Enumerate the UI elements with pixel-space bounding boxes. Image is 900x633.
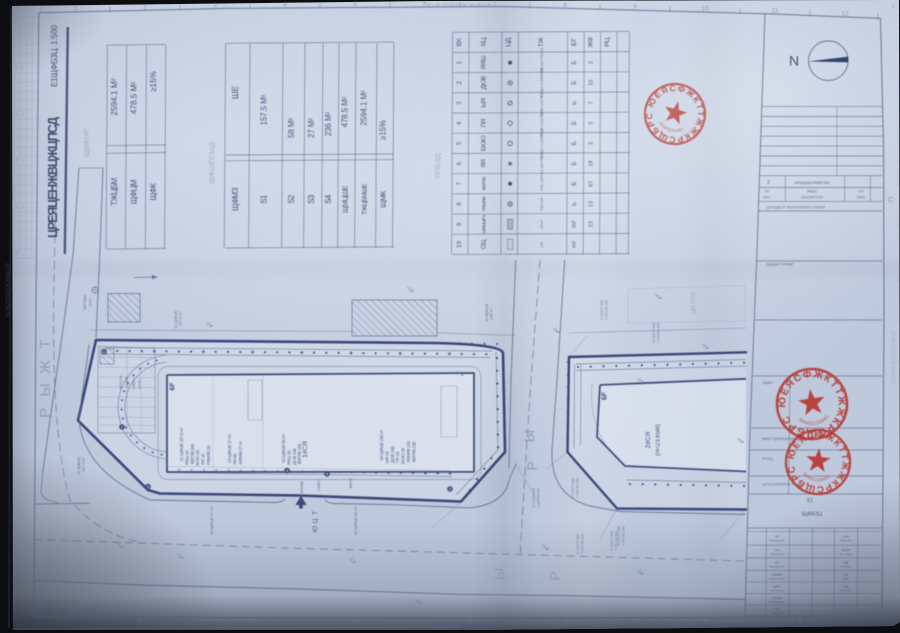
svg-text:Y=50046.393: Y=50046.393 bbox=[657, 323, 661, 343]
svg-text:m²: m² bbox=[572, 221, 578, 228]
svg-text:6F: 6F bbox=[170, 382, 177, 391]
svg-text:Б: Б bbox=[572, 81, 578, 85]
svg-text:РСХЦ: РСХЦ bbox=[762, 456, 773, 461]
svg-text:КББТ: КББТ bbox=[763, 380, 773, 385]
svg-text:ТЖЦБМШЕ: ТЖЦБМШЕ bbox=[362, 184, 369, 215]
svg-text:3: 3 bbox=[588, 122, 594, 125]
svg-text:1:500: 1:500 bbox=[50, 24, 59, 45]
svg-text:2#СЯ: 2#СЯ bbox=[645, 431, 652, 448]
svg-text:3: 3 bbox=[213, 2, 217, 9]
svg-text:Y=50046.393: Y=50046.393 bbox=[605, 300, 609, 320]
svg-text:ЩФШЕСЫД:: ЩФШЕСЫД: bbox=[207, 140, 216, 184]
svg-text:1: 1 bbox=[121, 425, 123, 429]
svg-text:1#СЯ: 1#СЯ bbox=[302, 441, 309, 458]
svg-text:БФЕП: БФЕП bbox=[132, 379, 136, 389]
svg-text:Drawed By: Drawed By bbox=[771, 552, 784, 556]
svg-text:--: -- bbox=[27, 169, 31, 171]
svg-text:2: 2 bbox=[892, 4, 895, 10]
svg-text:X=15577.846: X=15577.846 bbox=[571, 478, 575, 498]
svg-text:13: 13 bbox=[588, 201, 594, 207]
svg-text:3: 3 bbox=[588, 142, 594, 145]
svg-text:S1: S1 bbox=[260, 194, 269, 204]
svg-text:ЩБДФЗ: ЩБДФЗ bbox=[771, 573, 782, 577]
svg-text:Chief Design: Chief Design bbox=[770, 588, 785, 592]
svg-text:НФ: НФ bbox=[540, 241, 544, 247]
svg-text:5: 5 bbox=[456, 141, 463, 145]
svg-text:67: 67 bbox=[588, 181, 594, 187]
svg-text:Reviewed By: Reviewed By bbox=[769, 565, 785, 569]
svg-text:ЯЯШ 1Б: ЯЯШ 1Б bbox=[286, 450, 291, 465]
svg-text:157.5 m²: 157.5 m² bbox=[179, 310, 183, 326]
svg-text:Б: Б bbox=[572, 202, 578, 206]
svg-text:7: 7 bbox=[588, 101, 594, 104]
svg-text:P80-100: P80-100 bbox=[540, 197, 544, 211]
svg-text:S4 ЩФШЕ 236 m²: S4 ЩФШЕ 236 m² bbox=[379, 429, 384, 461]
svg-text:Ю AUTODESK КЫЕСЯ: Ю AUTODESK КЫЕСЯ bbox=[427, 4, 491, 10]
svg-text:11: 11 bbox=[772, 8, 779, 15]
svg-text:СФ: СФ bbox=[858, 190, 863, 194]
svg-text:S3: S3 bbox=[307, 194, 316, 204]
svg-text:3: 3 bbox=[456, 101, 463, 105]
svg-text:ЯПБЗД:: ЯПБЗД: bbox=[433, 151, 442, 178]
svg-text:5: 5 bbox=[353, 1, 357, 8]
svg-text:1#: 1# bbox=[21, 112, 25, 116]
svg-text:N: N bbox=[789, 53, 799, 69]
svg-text:РВМЯВ 2Б: РВМЯВ 2Б bbox=[206, 445, 211, 465]
svg-text:8: 8 bbox=[456, 202, 463, 206]
svg-text:--: -- bbox=[27, 29, 31, 31]
svg-text:ЩЖ: ЩЖ bbox=[15, 250, 19, 256]
svg-text:REV.: REV. bbox=[763, 196, 770, 200]
svg-text:Discip.Leader: Discip.Leader bbox=[769, 577, 785, 581]
svg-text:157.5 m²: 157.5 m² bbox=[82, 456, 86, 472]
svg-text:ТЖЦБМ: ТЖЦБМ bbox=[110, 177, 119, 206]
svg-text:≥15%: ≥15% bbox=[378, 120, 387, 140]
svg-text:3: 3 bbox=[449, 487, 451, 491]
svg-text:Р: Р bbox=[547, 571, 563, 580]
svg-text:ЦХ: ЦХ bbox=[844, 584, 848, 588]
svg-text:5: 5 bbox=[326, 472, 328, 476]
svg-text:6F: 6F bbox=[602, 391, 609, 400]
svg-text:10: 10 bbox=[588, 80, 594, 86]
svg-text:ФВТЯВ 19Б: ФВТЯВ 19Б bbox=[297, 443, 302, 464]
svg-text:--: -- bbox=[27, 57, 31, 59]
svg-text:m²: m² bbox=[572, 241, 578, 248]
svg-text:ХЦ: ХЦ bbox=[480, 38, 487, 47]
svg-text:2594.1 M²: 2594.1 M² bbox=[110, 78, 119, 115]
svg-text:2: 2 bbox=[767, 180, 770, 186]
svg-text:ЯЯЫС: ЯЯЫС bbox=[807, 190, 818, 194]
svg-text:ДЦЩБР STAMP: ДЦЩБР STAMP bbox=[766, 263, 794, 267]
svg-text:(H=23.65M): (H=23.65M) bbox=[656, 424, 662, 456]
svg-text:ЩЖ: ЩЖ bbox=[15, 17, 19, 23]
svg-text:БТ: БТ bbox=[571, 38, 578, 46]
svg-text:ЦКБС: ЦКБС bbox=[773, 584, 782, 588]
svg-text:12: 12 bbox=[841, 10, 849, 17]
svg-text:РВМЯВ: РВМЯВ bbox=[481, 196, 486, 211]
svg-text:Б: Б bbox=[572, 182, 578, 186]
svg-text:S1 ЩФШЕ: S1 ЩФШЕ bbox=[174, 310, 178, 329]
svg-text:2: 2 bbox=[588, 61, 594, 64]
svg-text:X=15577.846: X=15577.846 bbox=[652, 323, 656, 343]
svg-text:ЫЯ 1Б: ЫЯ 1Б bbox=[384, 451, 389, 463]
svg-text:S1 ЩФШЕ: S1 ЩФШЕ bbox=[77, 456, 81, 475]
svg-text:Ц: Ц bbox=[312, 518, 319, 523]
svg-text:РВМЯВ 11Б: РВМЯВ 11Б bbox=[406, 441, 411, 463]
svg-text:ФВТЯВ 23Б: ФВТЯВ 23Б bbox=[411, 441, 416, 462]
svg-text:ВХ: ВХ bbox=[456, 38, 463, 47]
svg-text:РЦ: РЦ bbox=[604, 38, 611, 47]
svg-text:ЯЯШ 1Б: ЯЯШ 1Б bbox=[184, 450, 189, 465]
svg-text:S4 ЩФШЕ: S4 ЩФШЕ bbox=[485, 303, 489, 322]
svg-text:Б: Б bbox=[572, 61, 578, 65]
svg-text:4: 4 bbox=[286, 469, 288, 473]
svg-text:23: 23 bbox=[588, 221, 594, 227]
svg-text:X=15577.846: X=15577.846 bbox=[600, 300, 604, 320]
svg-text:2: 2 bbox=[147, 485, 149, 489]
svg-text:Y=50046.393: Y=50046.393 bbox=[622, 526, 626, 546]
svg-text:Y=50046.393: Y=50046.393 bbox=[537, 488, 541, 508]
svg-text:1#: 1# bbox=[21, 159, 25, 163]
svg-text:6: 6 bbox=[565, 619, 568, 625]
svg-text:S3 ЩФШЕ 27 m²: S3 ЩФШЕ 27 m² bbox=[227, 433, 232, 463]
svg-text:Project No.: Project No. bbox=[840, 538, 853, 542]
svg-text:МЕТЩЮ: МЕТЩЮ bbox=[83, 294, 87, 310]
svg-text:ТЖ: ТЖ bbox=[538, 36, 545, 47]
svg-text:ЦМ·ПСВ: ЦМ·ПСВ bbox=[691, 292, 697, 314]
svg-text:КШ: КШ bbox=[775, 561, 780, 565]
svg-text:X=15577.846: X=15577.846 bbox=[610, 531, 614, 551]
svg-text:СЩ: СЩ bbox=[480, 239, 487, 249]
svg-text:СШХ: СШХ bbox=[842, 534, 849, 538]
svg-text:Ю AUTODESK КЫЕСЯ: Ю AUTODESK КЫЕСЯ bbox=[433, 623, 491, 629]
svg-text:БЮЮ: БЮЮ bbox=[480, 136, 487, 152]
svg-text:27 M²: 27 M² bbox=[307, 118, 316, 138]
svg-text:СЩФС: СЩФС bbox=[317, 479, 321, 491]
svg-text:58 M²: 58 M² bbox=[287, 118, 296, 138]
svg-text:AUTODESK КЫЕ: AUTODESK КЫЕ bbox=[14, 5, 50, 10]
svg-text:2594.1 M²: 2594.1 M² bbox=[360, 90, 369, 126]
svg-text:СШДФЗ: СШДФЗ bbox=[771, 596, 782, 600]
svg-text:7: 7 bbox=[637, 619, 640, 625]
svg-text:1: 1 bbox=[74, 5, 78, 12]
svg-text:--: -- bbox=[27, 225, 31, 227]
svg-text:ЩМЦШЕ: ЩМЦШЕ bbox=[341, 185, 350, 213]
svg-text:ФВТЯВ 39Б: ФВТЯВ 39Б bbox=[190, 443, 195, 464]
svg-text:E1ЩФБЗЦ: E1ЩФБЗЦ bbox=[49, 48, 59, 87]
svg-text:ЯЯШ: ЯЯШ bbox=[480, 55, 487, 69]
svg-text:3: 3 bbox=[252, 619, 255, 625]
svg-text:ЩФМЗ: ЩФМЗ bbox=[231, 187, 240, 211]
svg-text:БСН: БСН bbox=[89, 298, 93, 306]
svg-text:S2 ЩФШЕ 58 m²: S2 ЩФШЕ 58 m² bbox=[354, 506, 358, 536]
svg-text:9: 9 bbox=[633, 4, 637, 11]
svg-text:9: 9 bbox=[456, 222, 463, 226]
svg-text:236 m²: 236 m² bbox=[490, 307, 494, 320]
svg-text:ЩЖ: ЩЖ bbox=[15, 64, 19, 70]
svg-text:478.5 M²: 478.5 M² bbox=[341, 96, 350, 127]
svg-text:X=15577.846: X=15577.846 bbox=[532, 488, 536, 508]
svg-text:1#: 1# bbox=[21, 19, 25, 23]
svg-text:1#: 1# bbox=[21, 66, 25, 70]
svg-text:ЩЖ: ЩЖ bbox=[15, 110, 19, 116]
svg-text:4: 4 bbox=[456, 121, 463, 125]
svg-text:Р: Р bbox=[37, 408, 54, 418]
svg-text:7: 7 bbox=[493, 0, 497, 7]
svg-text:Ю AUTODESK КЫЕСЯ: Ю AUTODESK КЫЕСЯ bbox=[890, 331, 896, 385]
svg-text:Designed By: Designed By bbox=[770, 538, 785, 542]
svg-text:≥15%: ≥15% bbox=[149, 71, 158, 92]
svg-text:7: 7 bbox=[456, 182, 463, 186]
svg-text:Ю AUTODESK КЫЕСЯ: Ю AUTODESK КЫЕСЯ bbox=[6, 263, 12, 317]
svg-text:1#: 1# bbox=[21, 205, 25, 209]
svg-text:Ю: Ю bbox=[312, 525, 319, 532]
svg-text:10: 10 bbox=[456, 240, 463, 247]
svg-text:236 M²: 236 M² bbox=[324, 111, 333, 136]
svg-text:X=15577.846: X=15577.846 bbox=[617, 526, 621, 546]
svg-text:S4: S4 bbox=[324, 194, 333, 204]
svg-text:ФВТЯВ: ФВТЯВ bbox=[481, 177, 486, 191]
svg-text:ПЯ: ПЯ bbox=[480, 119, 487, 127]
svg-text:ПЯ 1Б: ПЯ 1Б bbox=[395, 451, 400, 463]
svg-text:Y=50046.393: Y=50046.393 bbox=[581, 534, 585, 554]
svg-text:СЦ: СЦ bbox=[775, 548, 780, 552]
svg-text:25/m²: 25/m² bbox=[540, 219, 544, 229]
svg-text:Ж: Ж bbox=[37, 360, 54, 374]
svg-text:Ы: Ы bbox=[491, 568, 507, 580]
svg-text:МПЩФЕ: МПЩФЕ bbox=[119, 374, 123, 389]
svg-text:ЩЖ: ЩЖ bbox=[15, 157, 19, 163]
svg-text:8: 8 bbox=[563, 2, 567, 9]
svg-text:Т: Т bbox=[37, 339, 54, 348]
svg-text:МЯММ: МЯММ bbox=[300, 481, 304, 493]
svg-text:ЩМК: ЩМК bbox=[378, 190, 387, 207]
svg-text:ЩПФЕ: ЩПФЕ bbox=[125, 376, 129, 388]
svg-text:ЦПСЩБСР REGISTERED STAMP: ЦПСЩБСР REGISTERED STAMP bbox=[766, 206, 826, 210]
svg-text:ЩМКНР:: ЩМКНР: bbox=[82, 127, 91, 157]
svg-text:Discipline: Discipline bbox=[840, 565, 852, 569]
svg-text:ЯЯ 6Б: ЯЯ 6Б bbox=[232, 453, 237, 465]
svg-text:ШЕ: ШЕ bbox=[230, 85, 240, 99]
svg-text:E1: E1 bbox=[807, 498, 813, 504]
svg-text:МЯММ 27 m²: МЯММ 27 m² bbox=[238, 440, 243, 464]
svg-text:Ы: Ы bbox=[37, 383, 54, 396]
svg-text:ЯЯ: ЯЯ bbox=[480, 160, 487, 168]
svg-text:ЫЯ: ЫЯ bbox=[480, 98, 487, 107]
svg-text:2: 2 bbox=[139, 619, 142, 625]
svg-text:S1 ЩФШЕ 157.5 m²: S1 ЩФШЕ 157.5 m² bbox=[179, 427, 184, 462]
svg-text:БЮЮ 2Б: БЮЮ 2Б bbox=[401, 447, 406, 464]
svg-text:DESCRIPTION: DESCRIPTION bbox=[801, 196, 823, 200]
svg-text:S2: S2 bbox=[287, 194, 296, 204]
svg-text:МЯММРЗ: МЯММРЗ bbox=[481, 215, 486, 234]
svg-text:ФВТЯ: ФВТЯ bbox=[349, 478, 353, 488]
svg-text:157.5 M²: 157.5 M² bbox=[260, 94, 269, 125]
svg-text:ЦД: ЦД bbox=[505, 37, 512, 47]
svg-text:БЮЮ 2Б: БЮЮ 2Б bbox=[195, 449, 200, 466]
svg-text:Scale: Scale bbox=[843, 577, 850, 581]
svg-text:2: 2 bbox=[143, 4, 147, 11]
svg-text:Traced By: Traced By bbox=[771, 611, 783, 615]
svg-text:--: -- bbox=[27, 85, 31, 87]
svg-text:ДЮВ: ДЮВ bbox=[480, 76, 487, 90]
svg-text:--: -- bbox=[27, 141, 31, 143]
svg-text:DATE: DATE bbox=[857, 196, 865, 200]
svg-text:X=15577.846: X=15577.846 bbox=[576, 534, 580, 554]
svg-text:9: 9 bbox=[799, 619, 802, 625]
svg-text:6: 6 bbox=[456, 161, 463, 165]
svg-text:ЕФЗП: ЕФЗП bbox=[138, 379, 142, 389]
svg-text:8: 8 bbox=[705, 619, 708, 625]
svg-text:S3 ЩФШЕ 27 m²: S3 ЩФШЕ 27 m² bbox=[210, 506, 214, 536]
svg-text:ДЮВ 16Б: ДЮВ 16Б bbox=[292, 448, 297, 465]
svg-text:ЩЖ: ЩЖ bbox=[15, 203, 19, 209]
svg-text:--: -- bbox=[27, 197, 31, 199]
svg-text:ЩФЦМ: ЩФЦМ bbox=[130, 179, 139, 204]
svg-text:Ы: Ы bbox=[521, 430, 537, 442]
svg-text:2: 2 bbox=[456, 81, 463, 85]
svg-text:S2 ЩФШЕ 58 m²: S2 ЩФШЕ 58 m² bbox=[281, 433, 286, 463]
svg-text:ЩФБЗЦ: ЩФБЗЦ bbox=[802, 512, 822, 518]
svg-text:4: 4 bbox=[356, 619, 359, 625]
svg-text:ЯЦ: ЯЦ bbox=[775, 607, 780, 611]
svg-text:Sheet No.: Sheet No. bbox=[840, 588, 852, 592]
svg-text:ДЮВ 10Б: ДЮВ 10Б bbox=[390, 446, 395, 463]
svg-text:10: 10 bbox=[701, 6, 709, 13]
svg-text:ЖФ: ЖФ bbox=[587, 37, 594, 48]
svg-text:Б: Б bbox=[572, 101, 578, 105]
svg-text:C: C bbox=[888, 197, 893, 204]
svg-text:КРЦЩБЩПФМЖТВЗ: КРЦЩБЩПФМЖТВЗ bbox=[795, 181, 830, 185]
svg-text:1: 1 bbox=[456, 60, 463, 64]
svg-text:ЩБ: ЩБ bbox=[844, 561, 849, 565]
svg-text:4: 4 bbox=[283, 2, 287, 9]
svg-text:Б: Б bbox=[572, 141, 578, 145]
svg-text:Des. Stage: Des. Stage bbox=[840, 552, 853, 556]
svg-text:ЦРЕЯЦЕНЖВЦЖЦПСД: ЦРЕЯЦЕНЖВЦЖЦПСД bbox=[46, 117, 60, 238]
svg-text:1#: 1# bbox=[21, 252, 25, 256]
svg-text:КБ: КБ bbox=[775, 534, 779, 538]
svg-text:478.5 M²: 478.5 M² bbox=[130, 82, 139, 115]
svg-text:ЩФК: ЩФК bbox=[149, 183, 158, 201]
svg-text:19: 19 bbox=[588, 161, 594, 167]
svg-text:P80-100: P80-100 bbox=[540, 177, 544, 191]
svg-text:ЕК: ЕК bbox=[765, 190, 769, 194]
svg-text:Y=50046.393: Y=50046.393 bbox=[576, 478, 580, 498]
svg-text:ДД: ДД bbox=[844, 573, 849, 577]
svg-text:Б: Б bbox=[572, 121, 578, 125]
svg-text:Б: Б bbox=[572, 162, 578, 166]
svg-text:ЯЯ 1Б: ЯЯ 1Б bbox=[201, 453, 206, 465]
svg-text:Р: Р bbox=[524, 461, 540, 470]
svg-text:КБШК: КБШК bbox=[842, 548, 851, 552]
svg-text:Т: Т bbox=[312, 511, 319, 515]
svg-text:H80-100 P60-80: H80-100 P60-80 bbox=[540, 150, 544, 176]
svg-text:Proj.Manager: Proj.Manager bbox=[769, 600, 785, 604]
